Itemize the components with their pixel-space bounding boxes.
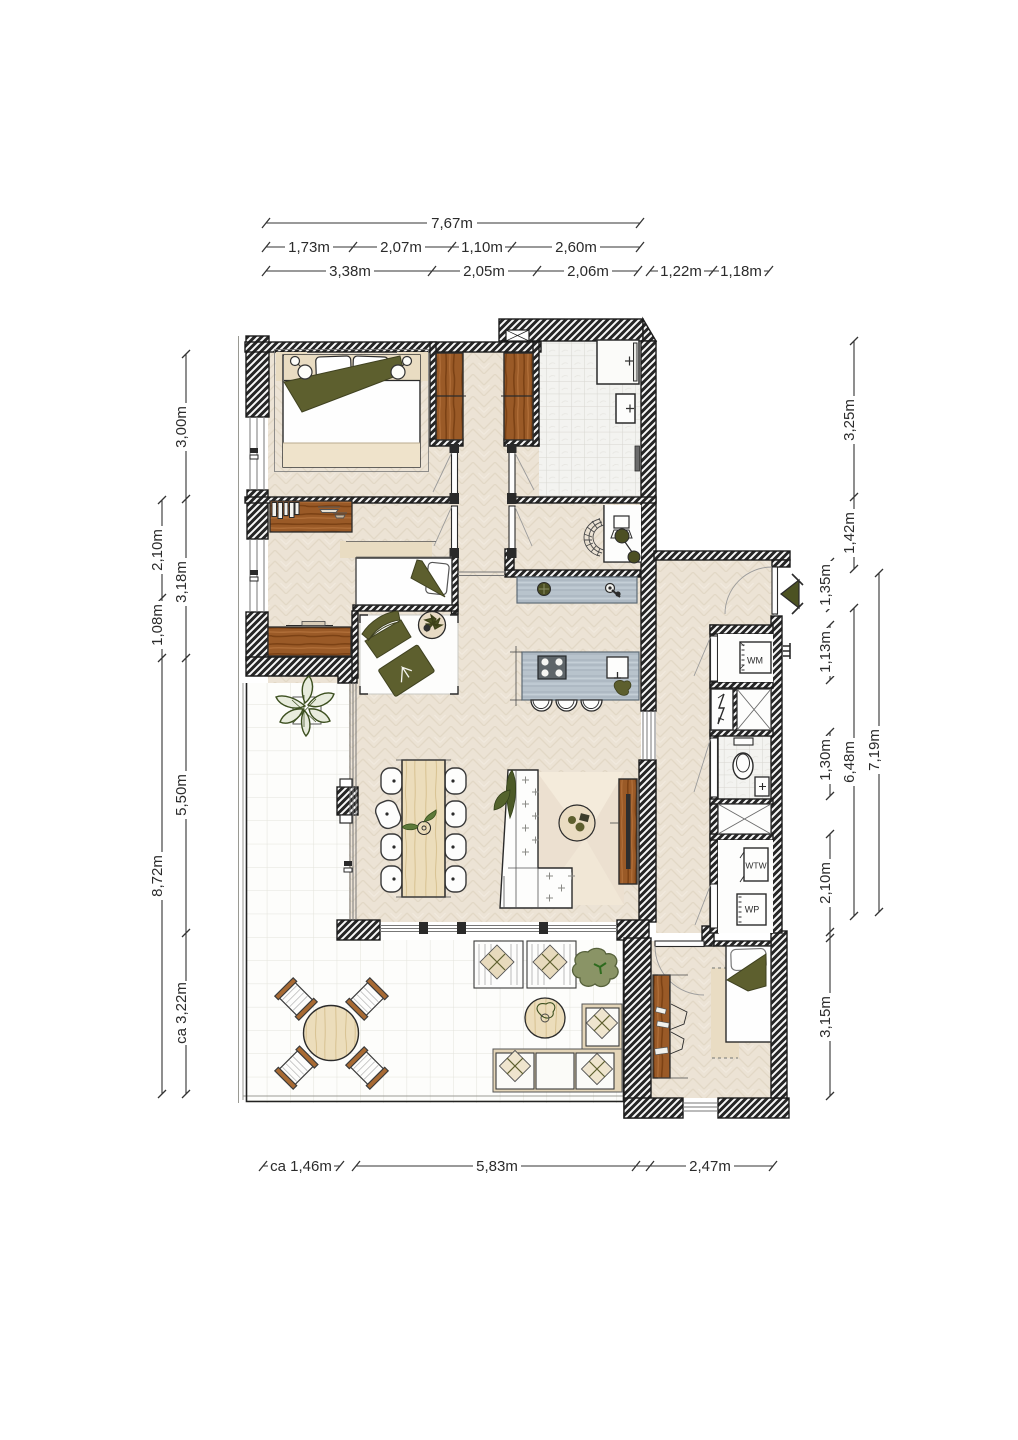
- svg-text:3,18m: 3,18m: [173, 561, 190, 603]
- svg-text:1,42m: 1,42m: [841, 512, 858, 554]
- svg-text:1,35m: 1,35m: [817, 564, 834, 606]
- svg-text:WM: WM: [747, 655, 763, 665]
- svg-text:1,73m: 1,73m: [288, 239, 330, 256]
- svg-text:WP: WP: [745, 904, 760, 914]
- svg-text:WTW: WTW: [745, 860, 766, 870]
- svg-text:1,18m: 1,18m: [720, 263, 762, 280]
- svg-text:3,38m: 3,38m: [329, 263, 371, 280]
- svg-text:2,10m: 2,10m: [149, 529, 166, 571]
- svg-text:1,08m: 1,08m: [149, 604, 166, 646]
- svg-text:6,48m: 6,48m: [841, 741, 858, 783]
- svg-text:2,07m: 2,07m: [380, 239, 422, 256]
- svg-text:2,06m: 2,06m: [567, 263, 609, 280]
- svg-text:7,19m: 7,19m: [866, 729, 883, 771]
- svg-text:1,30m: 1,30m: [817, 739, 834, 781]
- svg-text:1,22m: 1,22m: [660, 263, 702, 280]
- svg-text:2,60m: 2,60m: [555, 239, 597, 256]
- svg-text:1,10m: 1,10m: [461, 239, 503, 256]
- svg-text:ca 1,46m: ca 1,46m: [270, 1158, 332, 1175]
- svg-text:7,67m: 7,67m: [431, 215, 473, 232]
- svg-text:2,05m: 2,05m: [463, 263, 505, 280]
- svg-text:3,25m: 3,25m: [841, 399, 858, 441]
- svg-text:ca 3,22m: ca 3,22m: [173, 982, 190, 1044]
- svg-text:2,10m: 2,10m: [817, 862, 834, 904]
- svg-text:5,50m: 5,50m: [173, 774, 190, 816]
- svg-text:1,13m: 1,13m: [817, 631, 834, 673]
- svg-text:5,83m: 5,83m: [476, 1158, 518, 1175]
- svg-text:3,15m: 3,15m: [817, 996, 834, 1038]
- svg-text:2,47m: 2,47m: [689, 1158, 731, 1175]
- svg-text:8,72m: 8,72m: [149, 855, 166, 897]
- svg-text:3,00m: 3,00m: [173, 406, 190, 448]
